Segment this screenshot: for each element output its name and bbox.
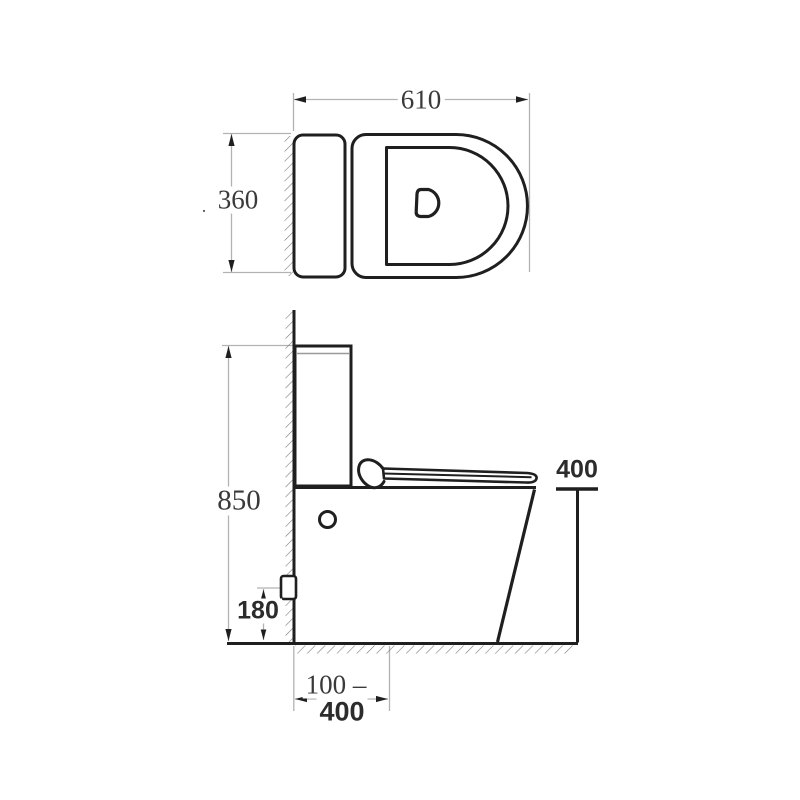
arrow-180-bottom	[261, 630, 267, 641]
seat-hinge	[359, 460, 384, 488]
stray-dot-mark: .	[201, 197, 208, 215]
dim-label-width-360: 360	[215, 187, 262, 214]
technical-drawing-canvas: 610 . 360 850 400 180 100 – 400	[0, 0, 800, 800]
drawing-linework	[0, 0, 800, 800]
top-view	[285, 135, 528, 278]
cistern-top-view	[294, 135, 345, 277]
cistern-side-view	[295, 346, 351, 486]
dim-label-outlet-range-400: 400	[316, 699, 367, 726]
water-inlet-box	[281, 576, 296, 599]
dim-label-outlet-range-100: 100 –	[303, 672, 370, 699]
fixing-hole	[320, 512, 336, 528]
arrow-610-left	[294, 96, 306, 102]
side-view	[227, 310, 598, 654]
floor-hatching	[295, 646, 574, 654]
wall-hatching-top-view	[285, 136, 294, 276]
bowl-back-slope-line	[498, 490, 535, 643]
arrow-360-top	[228, 134, 234, 146]
sump-outline-top-view	[416, 190, 439, 217]
arrow-850-top	[225, 346, 231, 358]
arrow-850-bottom	[225, 629, 231, 641]
arrow-outlet-right	[376, 696, 388, 702]
arrow-610-right	[516, 96, 528, 102]
dim-label-inlet-height-180: 180	[234, 599, 282, 624]
dim-label-seat-height-400: 400	[553, 458, 601, 483]
dim-label-height-850: 850	[214, 487, 264, 516]
arrow-360-bottom	[228, 260, 234, 272]
dim-label-length-610: 610	[398, 87, 445, 114]
